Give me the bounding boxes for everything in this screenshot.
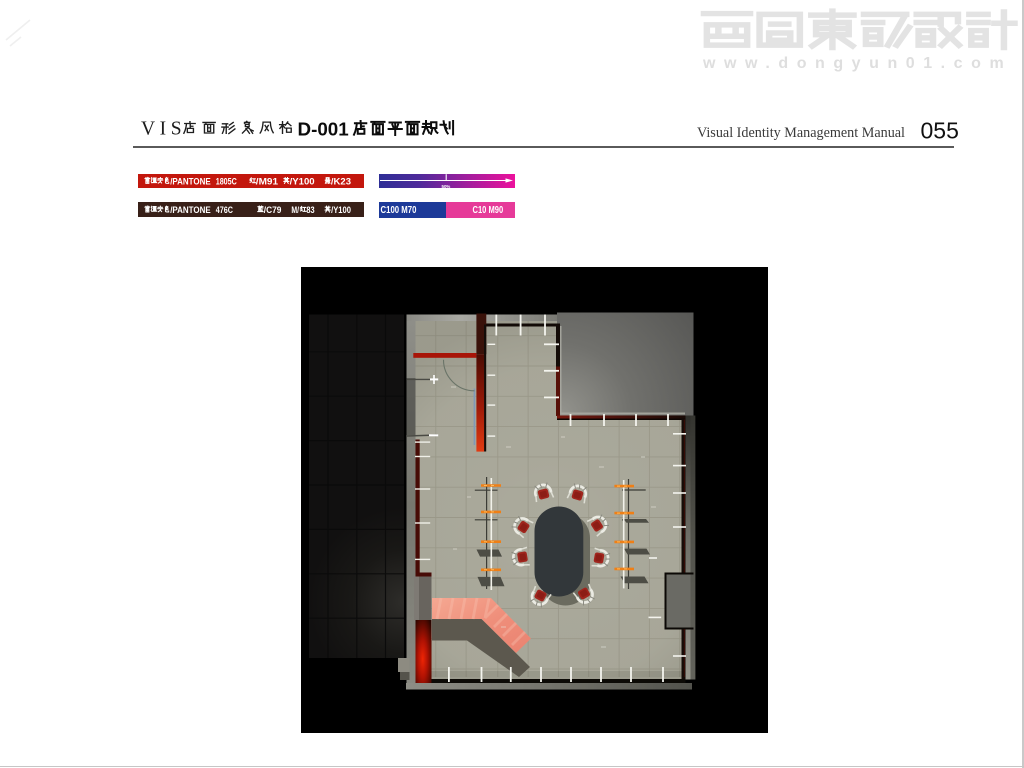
svg-text:83: 83: [306, 205, 314, 215]
svg-text:D-001: D-001: [298, 119, 349, 140]
svg-text:/Y100: /Y100: [331, 205, 351, 215]
svg-text:/C79: /C79: [264, 205, 282, 215]
svg-text:/PANTONE: /PANTONE: [170, 205, 211, 215]
svg-text:VIS: VIS: [141, 118, 186, 139]
svg-text:/PANTONE: /PANTONE: [170, 176, 211, 186]
svg-text:Visual Identity Management Man: Visual Identity Management Manual: [697, 124, 905, 141]
svg-text:055: 055: [921, 117, 959, 143]
svg-text:/K23: /K23: [331, 176, 351, 186]
svg-text:M/: M/: [291, 205, 299, 215]
svg-text:/M91: /M91: [256, 176, 278, 186]
svg-text:1805C: 1805C: [216, 176, 238, 186]
svg-text:50%: 50%: [442, 184, 451, 189]
svg-text:/Y100: /Y100: [290, 176, 315, 186]
svg-text:476C: 476C: [216, 205, 234, 215]
svg-text:www.dongyun01.com: www.dongyun01.com: [702, 55, 1012, 72]
svg-text:C100 M70: C100 M70: [381, 205, 417, 216]
svg-text:C10 M90: C10 M90: [473, 205, 504, 216]
